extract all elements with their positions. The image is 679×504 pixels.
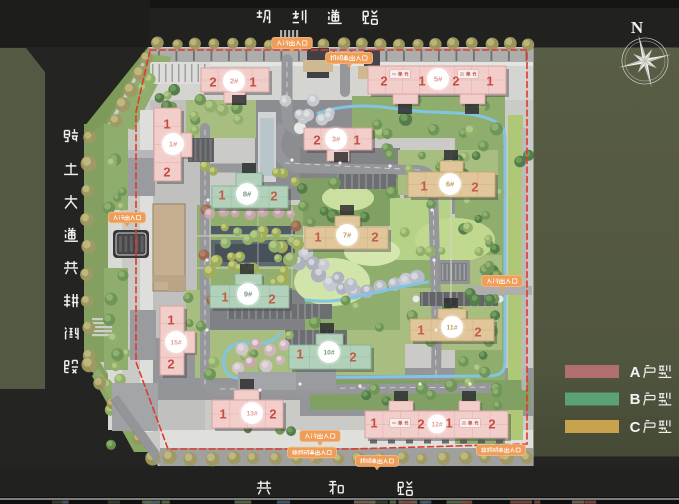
svg-text:A: A bbox=[630, 364, 641, 381]
svg-text:C: C bbox=[630, 419, 641, 436]
svg-text:B: B bbox=[630, 391, 641, 408]
svg-text:N: N bbox=[631, 18, 644, 37]
